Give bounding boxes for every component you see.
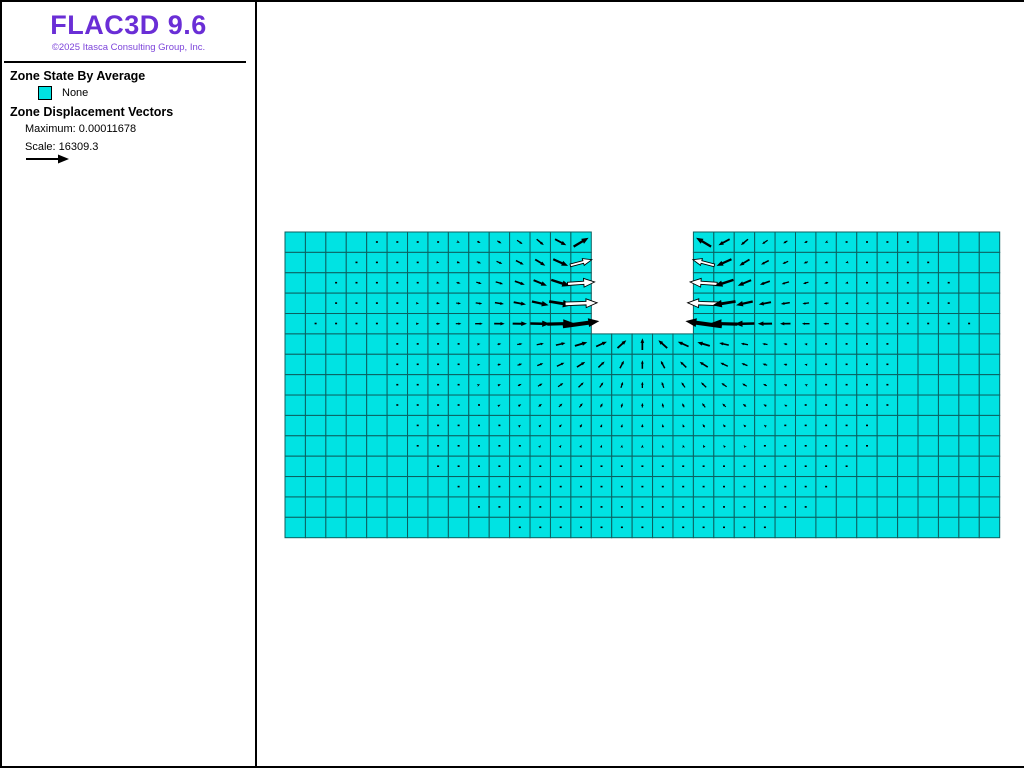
sidebar-divider-rule bbox=[4, 61, 246, 63]
app-title: FLAC3D 9.6 bbox=[2, 10, 255, 41]
displacement-vectors-heading: Zone Displacement Vectors bbox=[10, 105, 250, 119]
displacement-maximum-value: 0.00011678 bbox=[79, 123, 136, 135]
app-copyright: ©2025 Itasca Consulting Group, Inc. bbox=[2, 42, 255, 53]
displacement-maximum: Maximum: 0.00011678 bbox=[25, 123, 245, 135]
displacement-maximum-label: Maximum: bbox=[25, 123, 76, 135]
vector-scale-arrow-icon bbox=[25, 152, 71, 166]
zone-state-none-swatch bbox=[38, 86, 52, 100]
zone-state-none-label: None bbox=[62, 87, 88, 99]
zone-mesh-plot bbox=[257, 2, 1024, 766]
panel-divider bbox=[255, 2, 257, 766]
zone-state-heading: Zone State By Average bbox=[10, 69, 250, 83]
flac3d-window: FLAC3D 9.6 ©2025 Itasca Consulting Group… bbox=[0, 0, 1024, 768]
legend-sidebar: FLAC3D 9.6 ©2025 Itasca Consulting Group… bbox=[2, 2, 255, 766]
model-viewport[interactable] bbox=[257, 2, 1024, 766]
